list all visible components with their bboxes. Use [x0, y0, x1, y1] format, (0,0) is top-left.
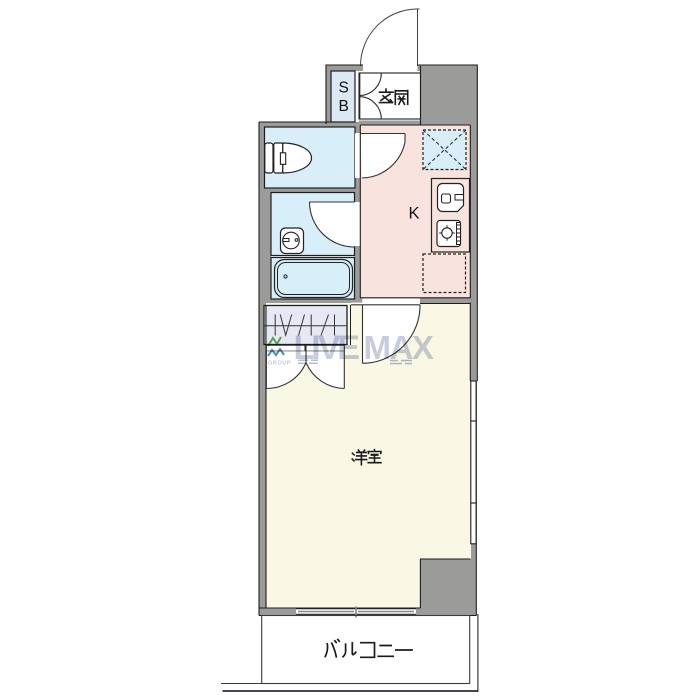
svg-text:LIVE: LIVE — [294, 329, 360, 367]
svg-text:GROUP: GROUP — [268, 361, 291, 367]
svg-text:MAX: MAX — [364, 329, 434, 366]
svg-text:S: S — [339, 80, 349, 97]
svg-text:B: B — [339, 98, 349, 115]
svg-text:K: K — [409, 205, 420, 223]
